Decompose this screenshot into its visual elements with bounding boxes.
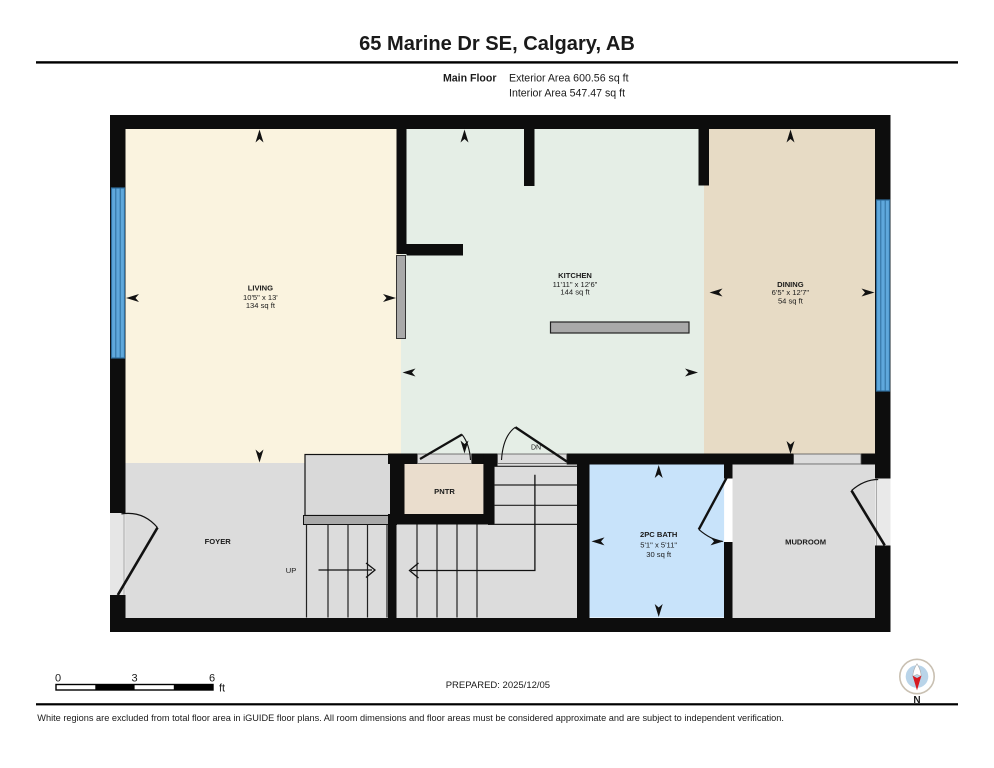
svg-text:DN: DN bbox=[531, 445, 541, 452]
svg-text:N: N bbox=[913, 695, 920, 706]
svg-text:ft: ft bbox=[219, 683, 225, 695]
svg-text:0: 0 bbox=[55, 673, 61, 685]
svg-text:144 sq ft: 144 sq ft bbox=[560, 288, 590, 297]
svg-text:PNTR: PNTR bbox=[434, 487, 455, 496]
svg-text:KITCHEN: KITCHEN bbox=[558, 271, 592, 280]
svg-text:54 sq ft: 54 sq ft bbox=[778, 296, 804, 305]
svg-text:30 sq ft: 30 sq ft bbox=[646, 550, 672, 559]
svg-text:2PC BATH: 2PC BATH bbox=[640, 530, 677, 539]
svg-text:3: 3 bbox=[131, 673, 137, 685]
svg-text:MUDROOM: MUDROOM bbox=[785, 537, 826, 546]
svg-text:FOYER: FOYER bbox=[205, 537, 232, 546]
svg-text:UP: UP bbox=[286, 566, 297, 575]
svg-text:White regions are excluded fro: White regions are excluded from total fl… bbox=[37, 713, 784, 723]
svg-text:134 sq ft: 134 sq ft bbox=[246, 301, 276, 310]
svg-text:5'1" x 5'11": 5'1" x 5'11" bbox=[640, 541, 677, 550]
svg-text:65 Marine Dr SE, Calgary, AB: 65 Marine Dr SE, Calgary, AB bbox=[359, 33, 635, 55]
svg-text:Exterior Area 600.56 sq ft: Exterior Area 600.56 sq ft bbox=[509, 73, 629, 85]
svg-text:Main Floor: Main Floor bbox=[443, 73, 497, 85]
svg-text:LIVING: LIVING bbox=[248, 284, 273, 293]
svg-text:Interior Area 547.47 sq ft: Interior Area 547.47 sq ft bbox=[509, 88, 625, 100]
svg-text:PREPARED: 2025/12/05: PREPARED: 2025/12/05 bbox=[446, 680, 550, 691]
svg-text:6: 6 bbox=[209, 673, 215, 685]
